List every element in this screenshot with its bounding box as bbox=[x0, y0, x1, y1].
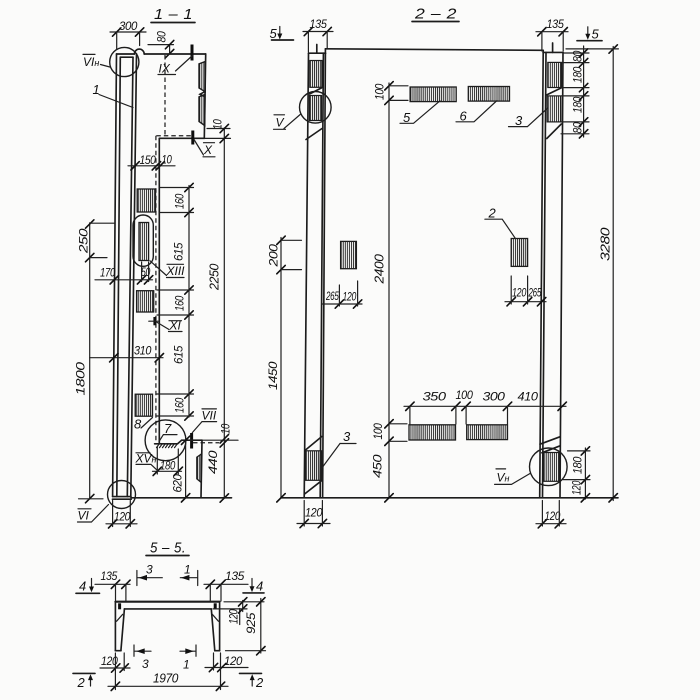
svg-text:2: 2 bbox=[488, 206, 497, 221]
svg-text:120: 120 bbox=[227, 609, 241, 624]
svg-text:10: 10 bbox=[162, 155, 173, 167]
svg-text:620: 620 bbox=[171, 474, 185, 493]
svg-text:2: 2 bbox=[77, 675, 86, 690]
svg-text:1970: 1970 bbox=[153, 671, 179, 686]
svg-text:135: 135 bbox=[310, 17, 328, 31]
svg-text:80: 80 bbox=[573, 50, 585, 62]
svg-text:VI: VI bbox=[78, 509, 90, 523]
svg-text:135: 135 bbox=[101, 569, 118, 583]
svg-text:160: 160 bbox=[173, 397, 187, 413]
svg-text:1: 1 bbox=[93, 82, 100, 97]
svg-text:4: 4 bbox=[79, 579, 86, 594]
svg-text:120: 120 bbox=[114, 510, 131, 524]
svg-text:120: 120 bbox=[570, 480, 584, 495]
svg-text:120: 120 bbox=[343, 291, 357, 303]
svg-text:180: 180 bbox=[160, 459, 176, 473]
svg-text:265: 265 bbox=[528, 288, 542, 300]
svg-text:200: 200 bbox=[267, 244, 281, 268]
svg-text:100: 100 bbox=[456, 388, 474, 402]
svg-text:80: 80 bbox=[155, 31, 169, 43]
svg-text:120: 120 bbox=[545, 509, 561, 523]
svg-text:5 – 5.: 5 – 5. bbox=[150, 540, 186, 557]
svg-text:135: 135 bbox=[547, 17, 565, 31]
svg-text:180: 180 bbox=[573, 66, 585, 83]
svg-text:300: 300 bbox=[119, 19, 138, 33]
svg-text:8: 8 bbox=[134, 417, 142, 432]
svg-text:925: 925 bbox=[244, 612, 258, 634]
svg-text:100: 100 bbox=[373, 423, 385, 440]
svg-text:265: 265 bbox=[325, 291, 339, 303]
svg-text:2 – 2: 2 – 2 bbox=[414, 6, 457, 23]
svg-text:50: 50 bbox=[141, 267, 151, 279]
svg-text:120: 120 bbox=[512, 287, 527, 299]
svg-text:120: 120 bbox=[305, 506, 323, 520]
svg-text:3280: 3280 bbox=[598, 227, 613, 261]
svg-text:615: 615 bbox=[172, 345, 186, 364]
svg-text:VII: VII bbox=[202, 409, 217, 423]
svg-text:X: X bbox=[203, 143, 213, 157]
svg-text:100: 100 bbox=[375, 83, 387, 100]
svg-text:1450: 1450 bbox=[266, 361, 280, 390]
svg-text:3: 3 bbox=[142, 657, 149, 671]
svg-text:XVн: XVн bbox=[135, 452, 157, 466]
svg-text:450: 450 bbox=[371, 454, 385, 478]
svg-text:250: 250 bbox=[77, 228, 91, 254]
svg-text:4: 4 bbox=[256, 579, 263, 594]
svg-text:135: 135 bbox=[225, 569, 245, 583]
svg-text:160: 160 bbox=[173, 295, 187, 311]
svg-text:615: 615 bbox=[172, 242, 186, 261]
svg-text:3: 3 bbox=[146, 563, 153, 577]
svg-text:VIн: VIн bbox=[83, 55, 99, 69]
svg-text:310: 310 bbox=[134, 344, 152, 358]
svg-text:3: 3 bbox=[343, 429, 351, 444]
svg-text:410: 410 bbox=[518, 390, 539, 404]
svg-text:350: 350 bbox=[423, 390, 447, 404]
svg-text:5: 5 bbox=[592, 27, 600, 42]
svg-text:3: 3 bbox=[515, 113, 523, 128]
svg-text:180: 180 bbox=[573, 96, 585, 113]
svg-text:2400: 2400 bbox=[372, 253, 387, 284]
svg-text:300: 300 bbox=[483, 390, 506, 404]
svg-text:10: 10 bbox=[213, 119, 225, 130]
svg-text:1: 1 bbox=[183, 658, 189, 672]
svg-text:V: V bbox=[276, 116, 285, 130]
svg-text:7: 7 bbox=[164, 421, 172, 436]
svg-text:IX: IX bbox=[159, 62, 171, 76]
svg-text:Vн: Vн bbox=[497, 471, 510, 485]
svg-text:2250: 2250 bbox=[207, 263, 222, 291]
svg-text:440: 440 bbox=[206, 450, 220, 474]
svg-text:1 – 1: 1 – 1 bbox=[154, 6, 193, 23]
svg-text:10: 10 bbox=[221, 423, 233, 434]
svg-text:2: 2 bbox=[255, 675, 264, 690]
svg-text:1: 1 bbox=[184, 563, 190, 577]
svg-text:120: 120 bbox=[224, 654, 243, 668]
svg-text:80: 80 bbox=[573, 122, 585, 134]
svg-text:170: 170 bbox=[100, 268, 116, 280]
svg-text:160: 160 bbox=[173, 193, 187, 209]
svg-text:180: 180 bbox=[571, 456, 585, 474]
svg-text:5: 5 bbox=[270, 26, 278, 41]
svg-text:1800: 1800 bbox=[74, 362, 88, 396]
svg-text:XIII: XIII bbox=[166, 264, 186, 278]
